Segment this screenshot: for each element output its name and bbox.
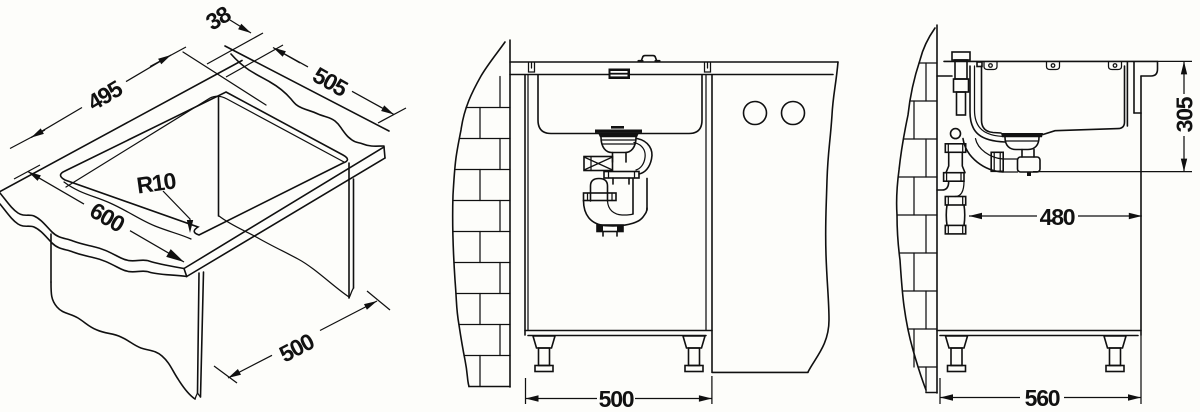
svg-text:R10: R10 [135, 167, 177, 198]
svg-text:500: 500 [599, 386, 634, 412]
svg-text:305: 305 [1172, 96, 1198, 132]
svg-text:560: 560 [1025, 385, 1060, 411]
svg-text:480: 480 [1040, 204, 1075, 230]
